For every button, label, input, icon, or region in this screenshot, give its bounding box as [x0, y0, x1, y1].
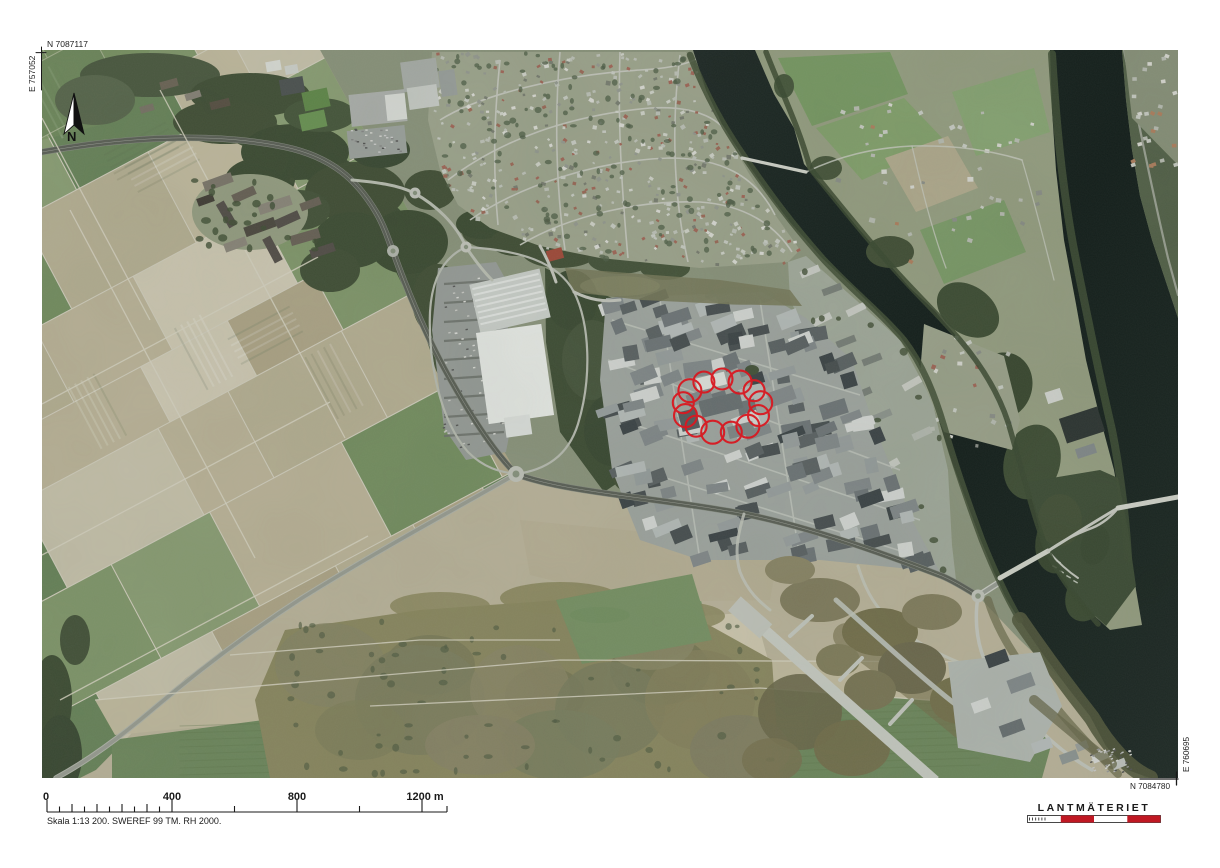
- svg-text:N: N: [67, 129, 76, 144]
- svg-text:N 7084780: N 7084780: [1130, 782, 1171, 791]
- svg-text:E 757052: E 757052: [27, 55, 37, 92]
- svg-text:0: 0: [43, 791, 49, 803]
- svg-text:Skala 1:13 200. SWEREF 99 TM.: Skala 1:13 200. SWEREF 99 TM. RH 2000.: [47, 816, 221, 826]
- svg-text:E 760695: E 760695: [1182, 736, 1191, 772]
- svg-text:800: 800: [288, 791, 306, 803]
- svg-text:LANTMÄTERIET: LANTMÄTERIET: [1038, 801, 1151, 814]
- svg-text:N 7087117: N 7087117: [47, 39, 88, 49]
- svg-text:400: 400: [163, 791, 181, 803]
- svg-text:1200 m: 1200 m: [406, 791, 444, 803]
